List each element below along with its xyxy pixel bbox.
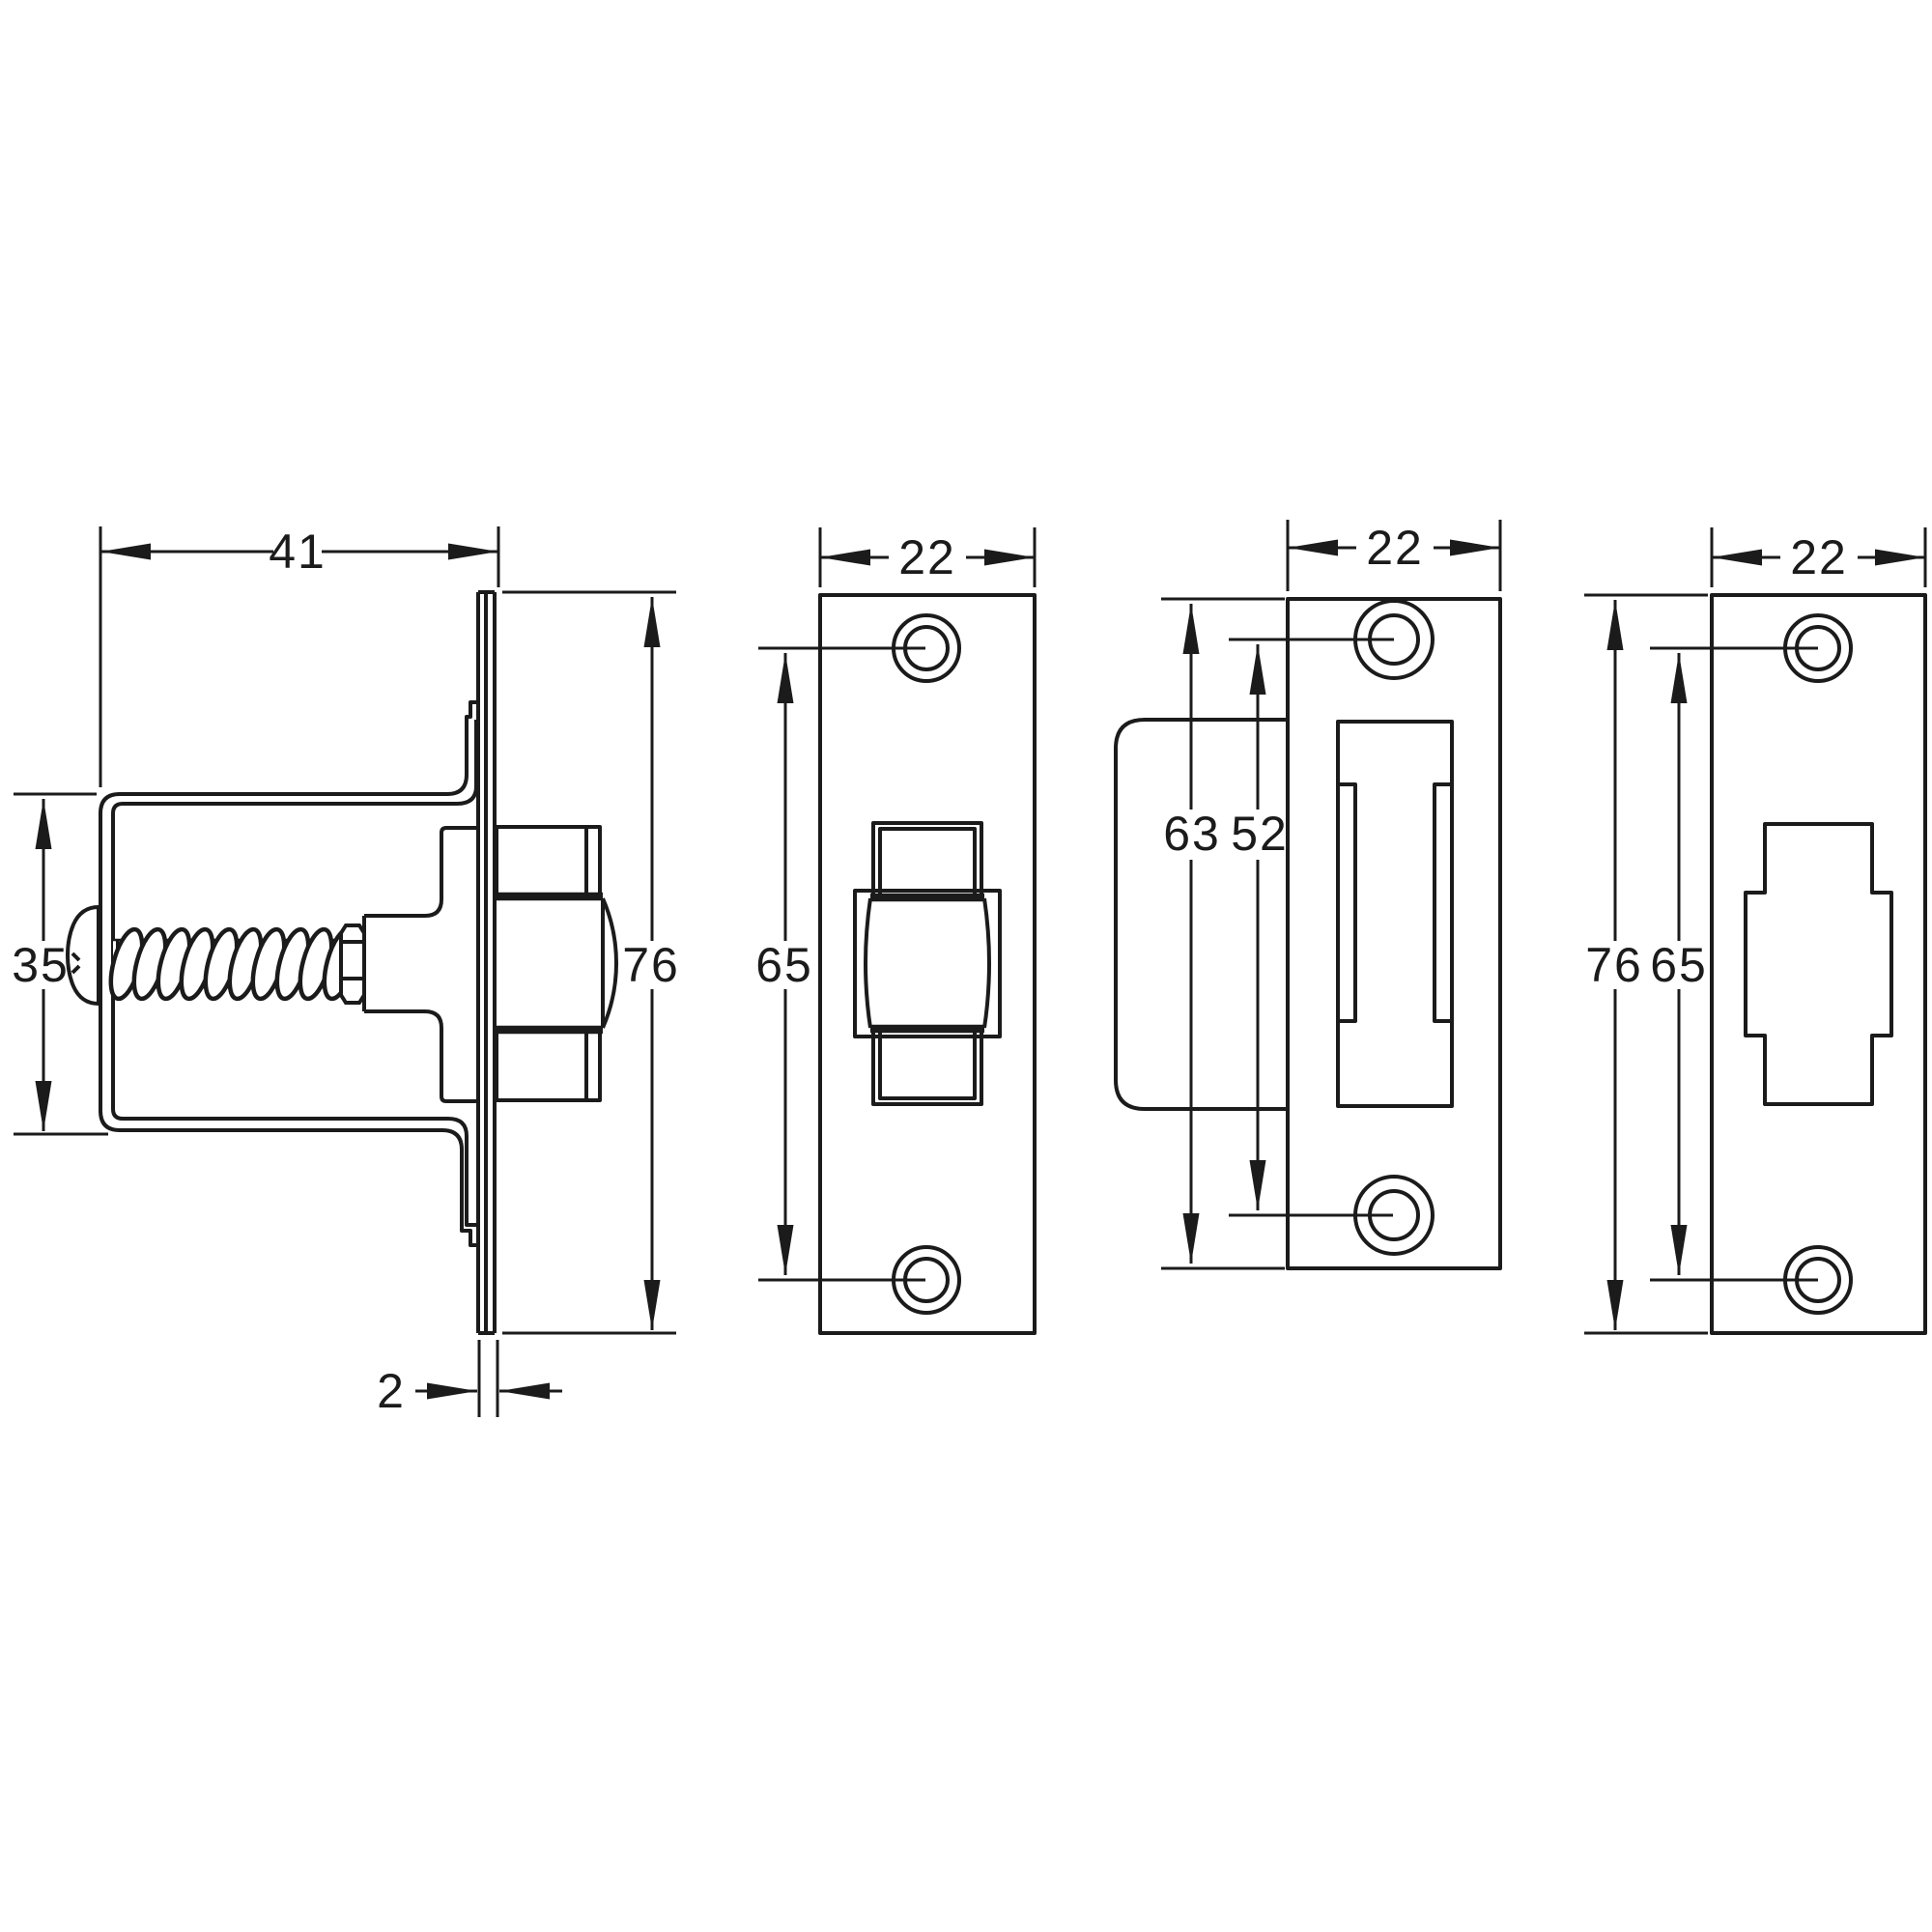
adjusting-nut: [341, 925, 364, 1003]
spring: [104, 926, 361, 1002]
view-strike-front: 22 76 65: [1584, 527, 1925, 1333]
strike-front-cross-cutout: [1746, 824, 1891, 1104]
dim-label-52: 52: [1231, 807, 1289, 861]
view-catch-front: 22 65: [755, 527, 1035, 1333]
latch-opening-tab-right: [1435, 784, 1452, 1021]
catch-front-plate: [820, 595, 1035, 1333]
dim-strike-box-hole-spacing: 52: [1229, 639, 1394, 1215]
screw-head: [68, 907, 99, 1004]
strike-box-latch-opening: [1338, 722, 1452, 1106]
dim-label-76-side: 76: [622, 938, 680, 992]
view-strike-box: 22 63 52: [1116, 520, 1500, 1268]
dim-label-22-catch: 22: [898, 530, 956, 584]
dim-plate-thickness: 2: [377, 1340, 562, 1418]
dim-depth: 41: [100, 525, 498, 787]
dim-strike-box-width: 22: [1288, 520, 1500, 591]
dim-strike-front-width: 22: [1712, 527, 1925, 587]
strike-box-plate: [1288, 599, 1500, 1268]
catch-side-faceplate-edge: [478, 592, 495, 1333]
latch-case: [364, 828, 476, 1101]
dim-label-41: 41: [269, 525, 327, 579]
dim-label-65-catch: 65: [755, 938, 813, 992]
dim-label-65-strikefront: 65: [1650, 938, 1708, 992]
catch-front-roller: [855, 823, 1000, 1104]
dim-strike-front-hole-spacing: 65: [1650, 648, 1818, 1280]
dim-label-63: 63: [1163, 807, 1221, 861]
dim-label-22-strikebox: 22: [1366, 521, 1424, 575]
technical-drawing: 41 35 76 2: [0, 0, 1932, 1932]
latch-opening-tab-left: [1338, 784, 1355, 1021]
dim-plate-height-side: 76: [502, 592, 680, 1333]
view-catch-side: 41 35 76 2: [12, 525, 680, 1418]
roller-side: [497, 827, 616, 1100]
dim-catch-hole-spacing: 65: [755, 648, 925, 1280]
dim-label-2: 2: [377, 1364, 406, 1418]
dim-label-76-strikefront: 76: [1585, 938, 1643, 992]
dim-strike-box-height: 63: [1161, 599, 1285, 1268]
dim-label-35: 35: [12, 938, 70, 992]
dim-catch-width: 22: [820, 527, 1035, 587]
drawing-canvas: 41 35 76 2: [0, 0, 1932, 1932]
strike-dust-box: [1116, 720, 1288, 1109]
dim-label-22-strikefront: 22: [1790, 530, 1848, 584]
